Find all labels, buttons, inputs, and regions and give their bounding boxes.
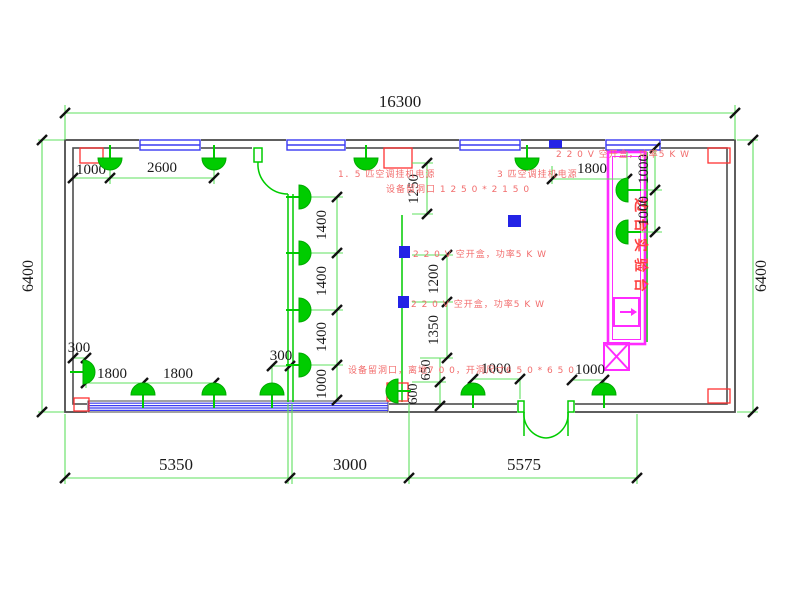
socket-box-icon	[399, 246, 410, 258]
dim-bench-2: 1000	[636, 196, 652, 226]
opening-mask	[252, 146, 290, 153]
wall-light-icon	[286, 298, 311, 322]
note-breaker-top: 2 2 0 V 空开盒，功率5 K W	[556, 148, 690, 160]
note-ac-3: 3 匹空调挂机电源	[497, 168, 578, 180]
dim-center-600: 600	[406, 384, 421, 405]
note-breaker-2: 2 2 0 V 空开盒，功率5 K W	[411, 298, 545, 310]
dim-topright-1800: 1800	[577, 161, 607, 177]
dim-left-side: 6400	[20, 260, 37, 292]
note-opening-bottom: 设备留洞口，离地7 0 0，开洞尺寸6 5 0 * 6 5 0	[348, 364, 575, 376]
dim-right-side: 6400	[753, 260, 770, 292]
dim-topleft-2600: 2600	[147, 160, 177, 176]
dim-bottom-3: 5575	[507, 455, 541, 474]
wall-light-icon	[286, 241, 311, 265]
bottom-strip-window	[88, 401, 388, 412]
dim-partition-2: 1400	[314, 266, 330, 296]
dim-bl-300: 300	[68, 340, 91, 356]
socket-box-icon	[508, 215, 521, 227]
dim-center-1350: 1350	[426, 315, 442, 345]
partition-door	[254, 148, 288, 194]
opening-mask	[517, 399, 575, 414]
dim-bottom-1: 5350	[159, 455, 193, 474]
dim-partition-4: 1000	[314, 369, 330, 399]
dim-partition-3: 1400	[314, 322, 330, 352]
dim-center-1200: 1200	[426, 264, 442, 294]
socket-box-icon	[398, 296, 409, 308]
note-opening-top: 设备留洞口 1 2 5 0 * 2 1 5 0	[386, 183, 530, 195]
floor-plan-drawing: 边台实验台	[0, 0, 800, 600]
dim-br-1000: 1000	[575, 362, 605, 378]
note-ac-15: 1．5 匹空调挂机电源	[338, 168, 435, 180]
note-breaker-1: 2 2 0 V 空开盒，功率5 K W	[413, 248, 547, 260]
dim-bl-300b: 300	[270, 348, 293, 364]
floor-drain-icon	[604, 343, 629, 370]
socket-box-icon	[549, 140, 562, 148]
floor-plan-canvas: 边台实验台	[0, 0, 800, 600]
wall-light-icon	[286, 185, 311, 209]
sink-icon	[614, 298, 639, 326]
equipment-opening-box	[384, 148, 412, 168]
dim-bottom-2: 3000	[333, 455, 367, 474]
electrical-boxes	[398, 140, 562, 308]
dim-top-overall: 16300	[379, 92, 422, 111]
dim-bl-1800b: 1800	[163, 366, 193, 382]
dim-bl-1800a: 1800	[97, 366, 127, 382]
dim-partition-1: 1400	[314, 210, 330, 240]
